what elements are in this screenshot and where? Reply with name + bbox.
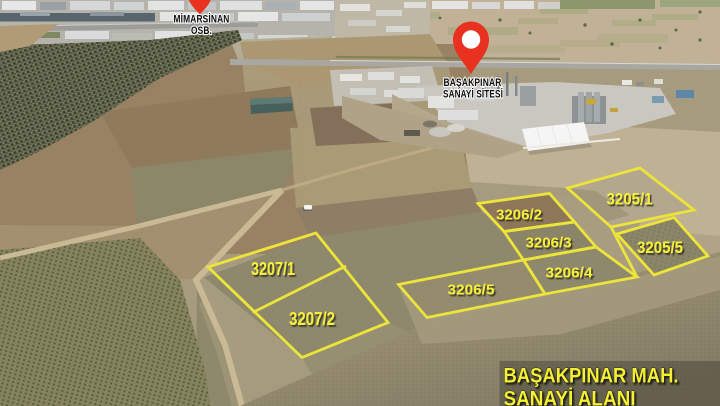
svg-text:3206/2: 3206/2 <box>496 207 542 224</box>
svg-text:SANAYİ SİTESİ: SANAYİ SİTESİ <box>443 88 503 101</box>
svg-text:3205/5: 3205/5 <box>637 239 683 257</box>
svg-text:SANAYİ ALANI: SANAYİ ALANI <box>504 387 636 406</box>
svg-text:BAŞAKPINAR: BAŞAKPINAR <box>444 77 502 89</box>
svg-text:BAŞAKPINAR MAH.: BAŞAKPINAR MAH. <box>504 364 679 388</box>
svg-text:3206/3: 3206/3 <box>526 235 572 252</box>
svg-text:3206/4: 3206/4 <box>546 265 594 282</box>
svg-text:3207/2: 3207/2 <box>289 309 335 329</box>
svg-text:3207/1: 3207/1 <box>251 259 295 279</box>
svg-text:OSB.: OSB. <box>191 25 212 37</box>
svg-text:3205/1: 3205/1 <box>607 191 653 209</box>
svg-text:3206/5: 3206/5 <box>448 283 495 299</box>
svg-text:MİMARSİNAN: MİMARSİNAN <box>174 13 230 26</box>
